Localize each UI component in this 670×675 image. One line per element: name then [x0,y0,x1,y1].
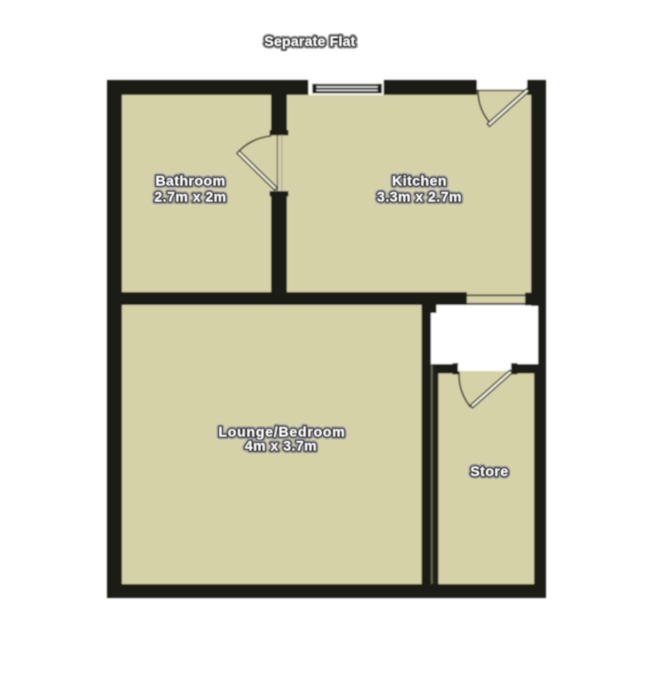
svg-text:Kitchen: Kitchen [392,173,447,189]
svg-text:4m x 3.7m: 4m x 3.7m [245,438,317,454]
svg-text:Bathroom: Bathroom [155,173,225,189]
svg-text:2.7m x 2m: 2.7m x 2m [154,189,226,205]
svg-text:3.3m x 2.7m: 3.3m x 2.7m [377,189,462,205]
svg-text:Separate Flat: Separate Flat [264,33,355,49]
svg-text:Store: Store [470,463,508,479]
